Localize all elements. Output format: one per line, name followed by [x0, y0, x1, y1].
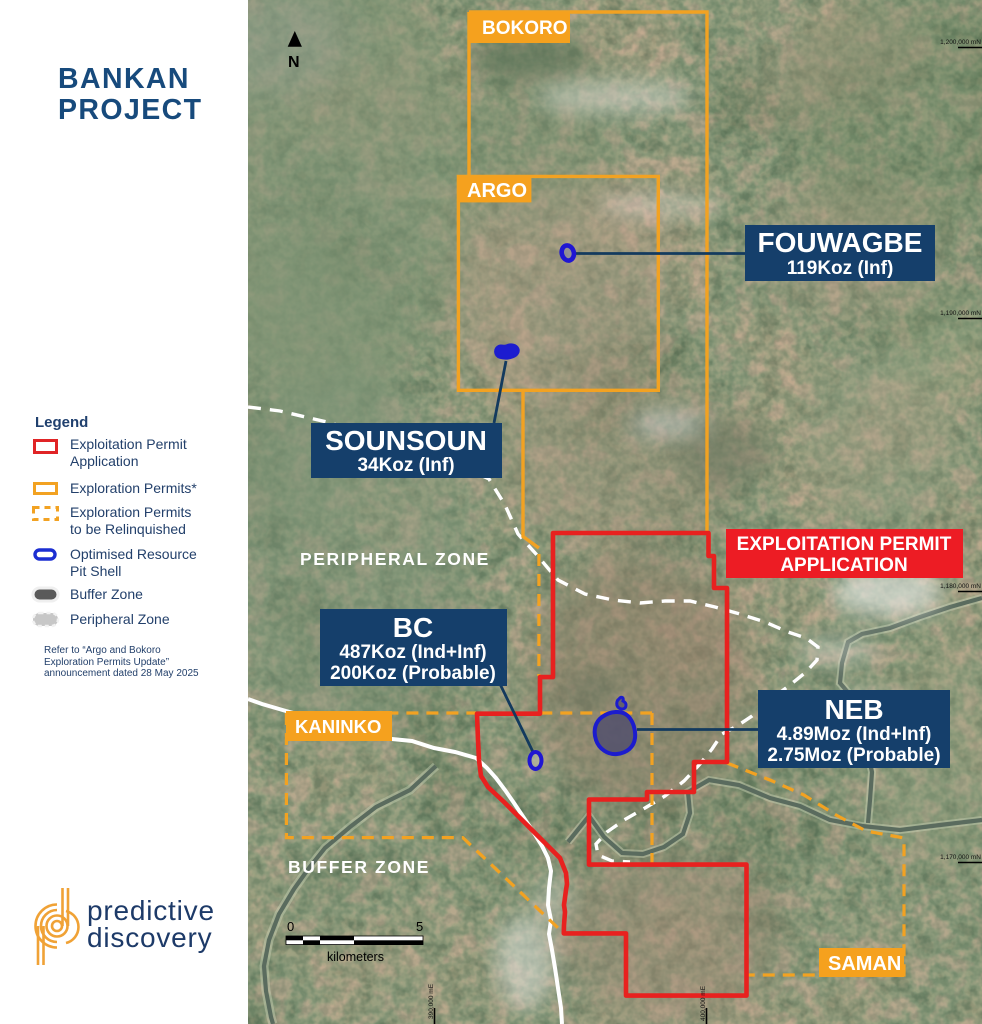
svg-text:SOUNSOUN: SOUNSOUN	[325, 425, 487, 456]
svg-text:4.89Moz (Ind+Inf): 4.89Moz (Ind+Inf)	[777, 724, 932, 745]
svg-text:kilometers: kilometers	[327, 950, 384, 964]
svg-text:0: 0	[287, 919, 294, 934]
svg-text:KANINKO: KANINKO	[295, 716, 381, 737]
svg-text:1,170,000 mN: 1,170,000 mN	[940, 854, 981, 861]
svg-text:200Koz (Probable): 200Koz (Probable)	[330, 663, 496, 684]
svg-text:1,180,000 mN: 1,180,000 mN	[940, 583, 981, 590]
svg-text:FOUWAGBE: FOUWAGBE	[758, 227, 923, 258]
svg-text:BC: BC	[393, 612, 433, 643]
svg-text:BOKORO: BOKORO	[482, 18, 568, 39]
svg-text:1,190,000 mN: 1,190,000 mN	[940, 310, 981, 317]
svg-text:N: N	[288, 54, 300, 71]
svg-text:SAMAN: SAMAN	[828, 953, 901, 975]
svg-text:EXPLOITATION PERMIT: EXPLOITATION PERMIT	[737, 534, 952, 555]
svg-text:BUFFER ZONE: BUFFER ZONE	[288, 857, 430, 877]
svg-text:487Koz (Ind+Inf): 487Koz (Ind+Inf)	[339, 642, 486, 663]
svg-text:PERIPHERAL ZONE: PERIPHERAL ZONE	[300, 549, 490, 569]
svg-text:ARGO: ARGO	[467, 180, 527, 202]
svg-text:NEB: NEB	[824, 694, 883, 725]
svg-text:5: 5	[416, 919, 423, 934]
svg-text:2.75Moz (Probable): 2.75Moz (Probable)	[767, 745, 940, 766]
svg-text:34Koz (Inf): 34Koz (Inf)	[357, 455, 454, 476]
svg-text:119Koz (Inf): 119Koz (Inf)	[787, 258, 894, 279]
svg-text:APPLICATION: APPLICATION	[780, 555, 907, 576]
svg-text:1,200,000 mN: 1,200,000 mN	[940, 39, 981, 46]
